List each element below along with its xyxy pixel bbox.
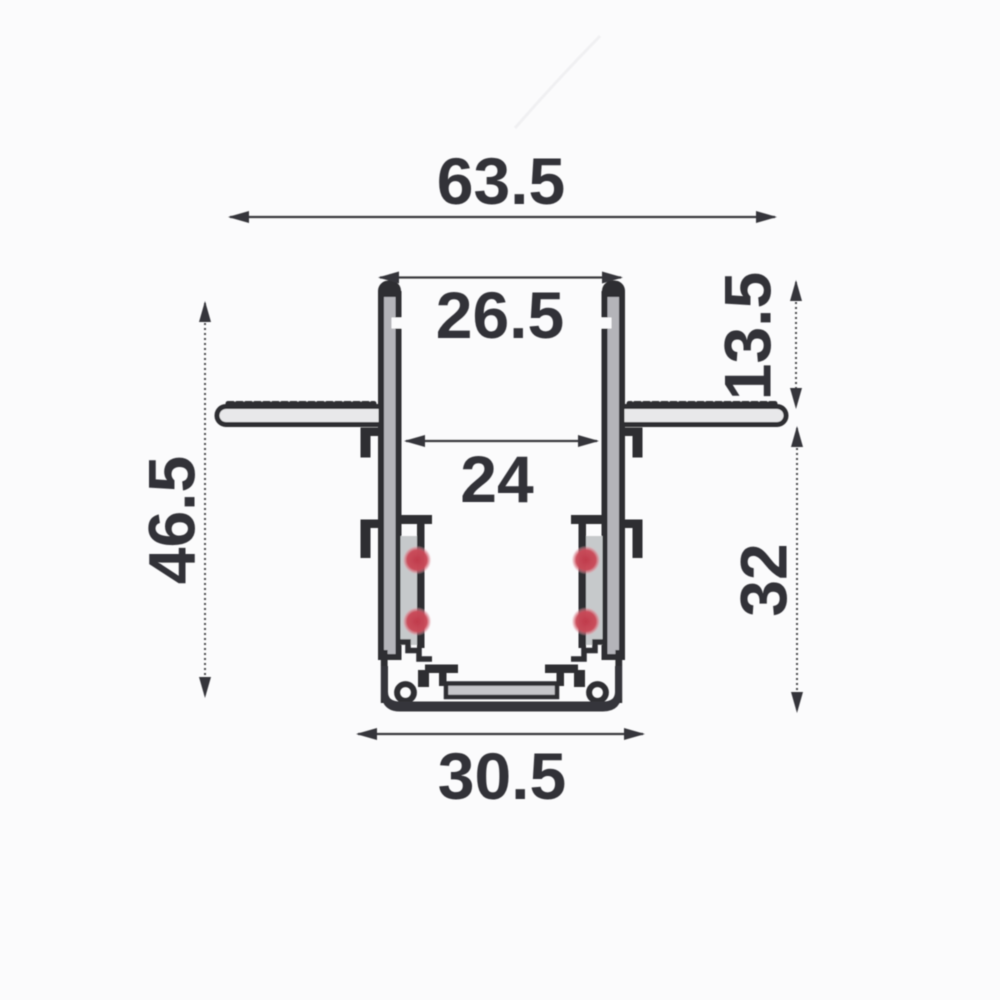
svg-text:32: 32 xyxy=(727,543,801,616)
svg-text:46.5: 46.5 xyxy=(135,456,209,584)
svg-text:13.5: 13.5 xyxy=(711,272,785,400)
svg-text:30.5: 30.5 xyxy=(438,739,566,813)
svg-text:26.5: 26.5 xyxy=(436,278,564,352)
svg-text:24: 24 xyxy=(460,442,534,516)
svg-text:63.5: 63.5 xyxy=(437,144,565,218)
